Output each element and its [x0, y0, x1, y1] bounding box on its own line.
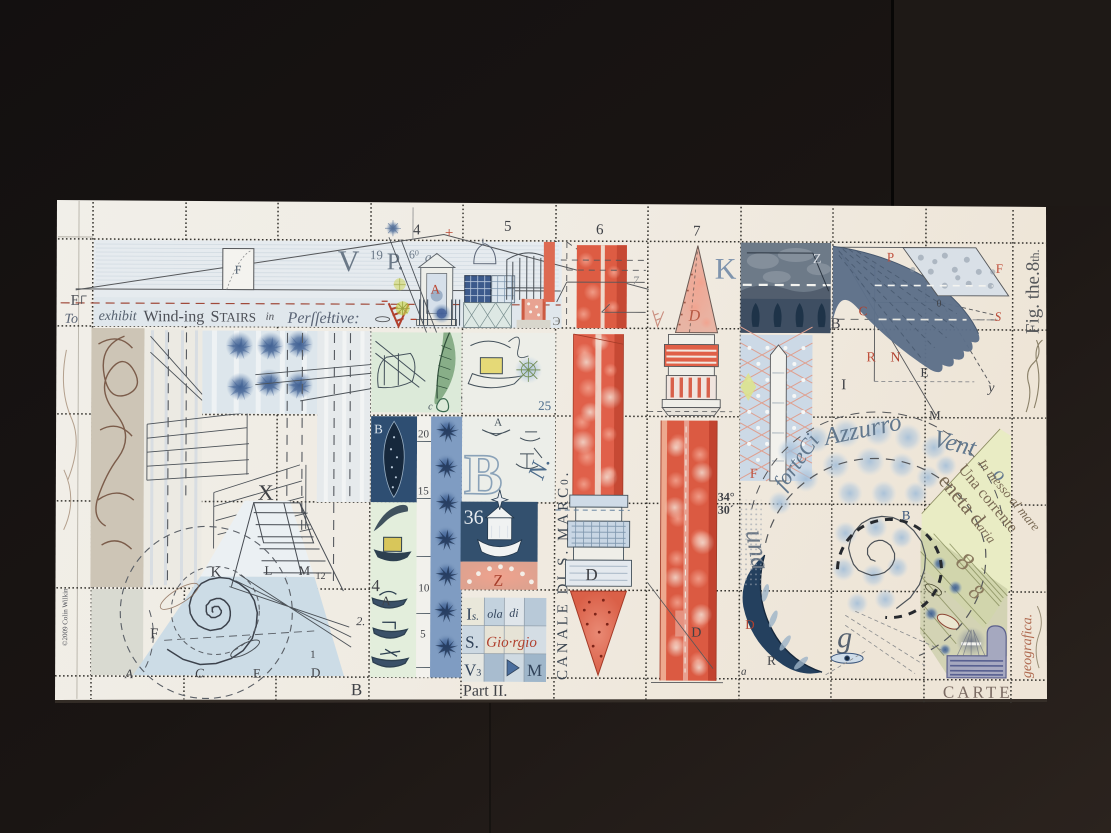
- svg-text:4: 4: [371, 576, 380, 595]
- svg-text:F: F: [750, 467, 758, 482]
- svg-text:g: g: [837, 621, 852, 654]
- svg-text:D: D: [585, 565, 597, 584]
- svg-text:F: F: [235, 263, 242, 277]
- svg-text:A: A: [124, 666, 133, 681]
- svg-text:E: E: [253, 666, 261, 681]
- svg-text:+: +: [445, 226, 454, 242]
- svg-text:D: D: [691, 626, 701, 641]
- svg-text:B: B: [902, 507, 911, 522]
- svg-text:y: y: [986, 381, 995, 396]
- svg-text:Wind-ing: Wind-ing: [144, 308, 205, 325]
- svg-text:R: R: [767, 653, 776, 668]
- svg-text:To: To: [65, 312, 79, 327]
- svg-text:geografica.: geografica.: [1020, 614, 1035, 678]
- svg-text:θ: θ: [937, 299, 942, 310]
- svg-text:c: c: [428, 401, 433, 412]
- svg-text:25: 25: [538, 398, 551, 413]
- svg-text:STAIRS: STAIRS: [211, 308, 257, 325]
- svg-text:5: 5: [504, 219, 512, 235]
- svg-text:R: R: [866, 350, 876, 365]
- svg-text:I: I: [841, 377, 846, 393]
- svg-text:B: B: [374, 421, 383, 436]
- svg-text:K: K: [715, 253, 737, 286]
- svg-text:Part II.: Part II.: [463, 683, 508, 700]
- svg-text:7: 7: [693, 224, 701, 240]
- svg-text:L: L: [264, 563, 272, 578]
- svg-text:Э: Э: [553, 314, 561, 328]
- svg-text:30´: 30´: [718, 503, 734, 517]
- svg-text:D: D: [745, 617, 754, 632]
- svg-text:A: A: [381, 593, 391, 608]
- svg-text:36: 36: [464, 507, 484, 529]
- svg-text:6: 6: [596, 222, 604, 238]
- svg-text:©2009 Colin Wilkin: ©2009 Colin Wilkin: [61, 588, 69, 646]
- svg-text:E: E: [920, 365, 928, 380]
- svg-text:C: C: [195, 665, 204, 680]
- svg-text:20: 20: [418, 428, 430, 440]
- svg-text:2.: 2.: [356, 614, 365, 628]
- svg-text:1: 1: [310, 649, 316, 661]
- svg-text:Gio·rgio: Gio·rgio: [486, 635, 537, 651]
- svg-text:M: M: [527, 661, 542, 680]
- svg-text:F: F: [150, 626, 158, 642]
- svg-text:V: V: [338, 245, 360, 278]
- svg-text:exhibit: exhibit: [99, 309, 138, 324]
- svg-text:S.: S.: [465, 633, 479, 652]
- svg-text:A: A: [494, 417, 502, 429]
- svg-text:di: di: [509, 606, 518, 620]
- svg-text:B: B: [351, 680, 362, 699]
- svg-text:19: 19: [370, 247, 383, 262]
- svg-text:Fig. the.8th.: Fig. the.8th.: [1023, 249, 1044, 334]
- svg-text:S: S: [995, 309, 1002, 324]
- svg-text:CARTE: CARTE: [943, 683, 1013, 702]
- svg-text:4: 4: [413, 222, 421, 238]
- svg-text:M: M: [929, 408, 941, 423]
- svg-text:Perſſeƚtive:: Perſſeƚtive:: [287, 310, 360, 327]
- svg-text:10: 10: [418, 582, 430, 594]
- svg-text:B: B: [464, 442, 503, 507]
- svg-text:Z: Z: [813, 252, 822, 267]
- svg-text:12: 12: [315, 571, 325, 582]
- svg-text:F: F: [996, 261, 1003, 276]
- svg-text:N: N: [890, 350, 900, 365]
- svg-text:B: B: [831, 316, 841, 332]
- svg-text:ola: ola: [487, 607, 502, 621]
- svg-text:5: 5: [420, 628, 426, 640]
- svg-text:7: 7: [633, 273, 640, 287]
- svg-text:D: D: [688, 308, 701, 325]
- svg-text:C: C: [859, 303, 868, 318]
- svg-text:Z: Z: [493, 573, 503, 590]
- svg-text:a: a: [741, 666, 747, 678]
- svg-text:E: E: [71, 293, 80, 309]
- svg-text:P: P: [887, 249, 894, 264]
- svg-text:D: D: [311, 665, 320, 680]
- svg-text:K: K: [210, 564, 221, 580]
- svg-text:34°: 34°: [718, 490, 735, 504]
- svg-text:15: 15: [418, 485, 430, 497]
- svg-text:in: in: [266, 311, 275, 323]
- svg-text:M: M: [298, 563, 310, 578]
- svg-text:A: A: [431, 281, 441, 296]
